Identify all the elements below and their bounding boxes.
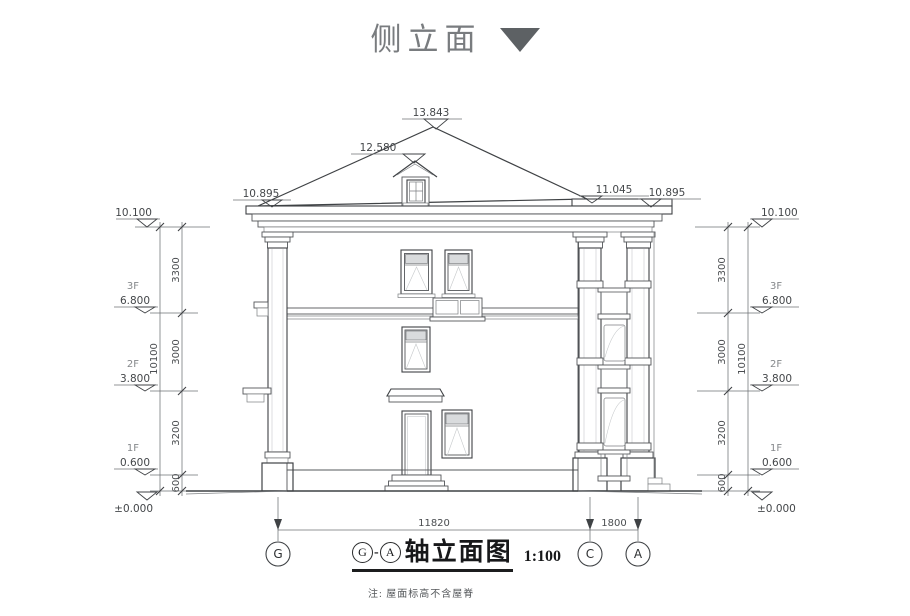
level-3800-right: 3.800: [762, 373, 792, 385]
level-dormer-ridge: 12.580: [360, 142, 397, 154]
column-a-block-1f: [625, 443, 651, 450]
rail-2f-top: [598, 365, 630, 369]
drawing-note: 注: 屋面标高不含屋脊: [368, 585, 474, 600]
column-a-cap1: [621, 232, 655, 237]
axis-ext-lines: [278, 497, 638, 541]
pilaster-g-cap2: [265, 237, 290, 242]
entry-steps: [385, 475, 448, 491]
porch-balustrades: [598, 288, 630, 481]
level-0600-right: 0.600: [762, 457, 792, 469]
floor-3f-right: 3F: [770, 281, 782, 292]
cornice: [246, 199, 672, 232]
porch-step-2: [648, 484, 670, 491]
level-zero-left-mark: [137, 492, 157, 500]
column-c-shaft: [579, 248, 601, 452]
level-zero-right: ±0.000: [757, 503, 796, 515]
dim-3300-right: 3300: [717, 257, 728, 282]
rail-3f-bottom: [598, 314, 630, 319]
rail-3f-top: [598, 288, 630, 292]
axis-label-c: C: [586, 547, 594, 561]
ac-platform: [430, 298, 485, 321]
canopy-top: [387, 389, 444, 396]
door-canopy: [387, 389, 444, 402]
caption-title: 轴立面图: [405, 540, 513, 565]
elevation-drawing: 3300 3000 3200 600 10100 10.100 3F 6.800…: [0, 0, 910, 616]
window-2f-transom: [406, 331, 426, 340]
floor-2f-left: 2F: [127, 359, 139, 370]
dim-3300-left: 3300: [171, 257, 182, 282]
level-zero-right-mark: [752, 492, 772, 500]
porch-panel-3f: [604, 325, 625, 361]
level-10100-right: 10.100: [761, 207, 798, 219]
axis-label-g: G: [273, 547, 282, 561]
axis-arrow-g: [274, 519, 282, 530]
windows-3f: [398, 250, 475, 298]
level-6800-left: 6.800: [120, 295, 150, 307]
level-3800-left-mark: [135, 385, 155, 391]
level-0600-left-mark: [135, 469, 155, 475]
level-ridge: 13.843: [413, 107, 450, 119]
step-2: [389, 481, 445, 486]
dim-600-right: 600: [717, 473, 728, 492]
cornice-frieze: [264, 227, 652, 232]
column-c-block-2f: [577, 358, 603, 365]
caption-underlined-part: G - A 轴立面图: [352, 540, 513, 572]
floor-band-upper: [287, 308, 578, 314]
level-6800-right-mark: [752, 307, 772, 313]
level-eave-right: 10.895: [649, 187, 686, 199]
level-10100-left: 10.100: [115, 207, 152, 219]
ledge-2f: [243, 388, 271, 394]
dim-3000-right: 3000: [717, 339, 728, 364]
window-3f-left-transom: [406, 255, 428, 264]
dim-total-left: 10100: [149, 343, 160, 375]
level-6800-right: 6.800: [762, 295, 792, 307]
porch-panel-1f: [604, 398, 625, 446]
step-3: [385, 486, 448, 491]
caption-scale: 1:100: [524, 549, 561, 572]
pilaster-g-cap3: [268, 242, 288, 248]
sill-3f-right: [442, 294, 475, 298]
caption-dash: -: [374, 545, 379, 561]
floor-1f-left: 1F: [127, 443, 139, 454]
dims-right: 3300 3000 3200 600 10100 10.100 3F 6.800…: [695, 207, 799, 515]
column-a-block-3f: [625, 281, 651, 288]
column-a-cap3: [627, 242, 651, 248]
rail-1f-bottom: [598, 476, 630, 481]
pilaster-g: [243, 232, 293, 491]
dim-3200-right: 3200: [717, 420, 728, 445]
ac-ledge: [430, 317, 485, 321]
dormer: [393, 161, 437, 207]
window-1f-transom: [446, 414, 468, 424]
balusters-3f: [601, 292, 627, 314]
dim-total-right: 10100: [737, 343, 748, 375]
ground: [186, 491, 702, 494]
column-c-cap2: [576, 237, 604, 242]
pilaster-g-shaft: [268, 248, 287, 452]
level-6800-left-mark: [135, 307, 155, 313]
dims-left: 3300 3000 3200 600 10100 10.100 3F 6.800…: [114, 207, 210, 515]
level-3800-right-mark: [752, 385, 772, 391]
axis-arrow-a: [634, 519, 642, 530]
axis-label-a: A: [634, 547, 643, 561]
floor-2f-right: 2F: [770, 359, 782, 370]
level-0600-right-mark: [752, 469, 772, 475]
window-3f-right-transom: [449, 255, 468, 264]
pilaster-g-cap1: [262, 232, 293, 237]
level-3800-left: 3.800: [120, 373, 150, 385]
rail-2f-bottom: [598, 388, 630, 393]
level-ridge-mark: [424, 119, 448, 129]
caption-axis-a: A: [380, 542, 401, 563]
floor-1f-right: 1F: [770, 443, 782, 454]
balusters-2f: [601, 369, 627, 388]
cornice-band-2: [252, 214, 662, 221]
dim-11820: 11820: [418, 518, 450, 529]
drawing-caption: G - A 轴立面图 1:100: [352, 540, 561, 572]
column-a-cap2: [624, 237, 652, 242]
window-2f: [402, 327, 430, 372]
rail-1f-top: [598, 450, 630, 454]
step-1: [392, 475, 441, 481]
dim-600-left: 600: [171, 473, 182, 492]
roof-level-marks: 13.843 12.580 10.895 11.045 10.895: [233, 107, 701, 207]
canopy-fascia: [389, 396, 442, 402]
column-a-shaft: [627, 248, 649, 452]
pilaster-g-base-molding: [265, 452, 290, 458]
porch-step-1: [648, 478, 662, 484]
dim-3000-left: 3000: [171, 339, 182, 364]
level-eave-left: 10.895: [243, 188, 280, 200]
column-c-block-3f: [577, 281, 603, 288]
ledge-2f-lower: [247, 394, 264, 402]
floor-3f-left: 3F: [127, 281, 139, 292]
pilaster-g-base: [262, 463, 293, 491]
level-zero-left: ±0.000: [114, 503, 153, 515]
level-cornice-right: 11.045: [596, 184, 633, 196]
column-c-block-1f: [577, 443, 603, 450]
caption-axis-g: G: [352, 542, 373, 563]
bracket-3f: [254, 302, 268, 308]
dim-1800: 1800: [601, 518, 626, 529]
sill-3f-left: [398, 294, 435, 298]
column-c-cap1: [573, 232, 607, 237]
bracket-3f-lower: [257, 308, 268, 316]
page: 侧立面: [0, 0, 910, 616]
column-a-block-2f: [625, 358, 651, 365]
level-10100-right-mark: [752, 219, 772, 227]
cornice-band-3: [258, 221, 654, 227]
entry-1f: [402, 410, 472, 475]
level-10100-left-mark: [137, 219, 157, 227]
door: [402, 411, 431, 475]
pilaster-g-base-molding2: [267, 458, 288, 463]
cornice-band-1: [246, 206, 672, 214]
dim-3200-left: 3200: [171, 420, 182, 445]
column-c-cap3: [579, 242, 603, 248]
axis-arrow-c: [586, 519, 594, 530]
level-0600-left: 0.600: [120, 457, 150, 469]
